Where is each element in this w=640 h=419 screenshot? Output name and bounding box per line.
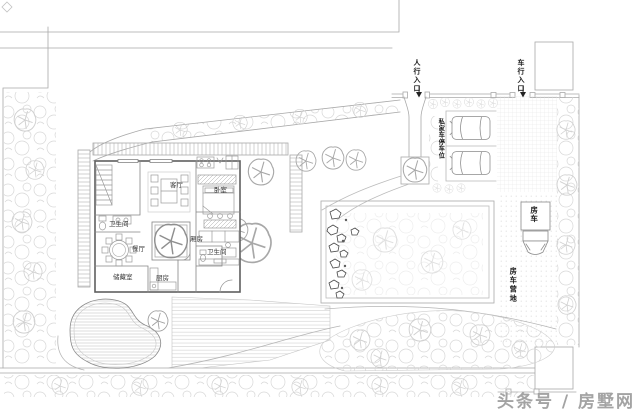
- label-rv: 房车: [529, 206, 538, 223]
- label-pedestrian-entrance: 人行入口: [413, 59, 421, 93]
- label-private-parking: 私家车停车位: [437, 118, 444, 159]
- pond-tree: [148, 311, 168, 331]
- site-plan-drawing: [0, 0, 640, 419]
- label-bedroom: 卧室: [214, 187, 227, 194]
- entrance-arrows: [416, 86, 526, 98]
- label-bathroom-1: 卫生间: [109, 221, 129, 228]
- entry-tree: [403, 158, 427, 182]
- site-plan: 人行入口 车行入口 私家车停车位 房车 房车营地 客厅 卧室 卫生间 餐厅 厢房…: [0, 0, 640, 419]
- label-dining-room: 餐厅: [132, 246, 145, 253]
- pond: [70, 299, 161, 368]
- deck: [172, 297, 330, 368]
- label-bathroom-2: 卫生间: [207, 249, 227, 256]
- label-wing-room: 厢房: [190, 236, 203, 243]
- pool: [321, 201, 494, 303]
- label-rv-camp: 房车营地: [509, 267, 517, 304]
- label-kitchen: 厨房: [156, 275, 169, 282]
- car-1: [450, 117, 490, 140]
- label-storage-room: 储藏室: [113, 274, 133, 281]
- watermark: 头条号 / 房墅网: [497, 392, 635, 412]
- label-living-room: 客厅: [170, 182, 183, 189]
- label-vehicle-entrance: 车行入口: [517, 59, 525, 93]
- car-2: [450, 152, 490, 175]
